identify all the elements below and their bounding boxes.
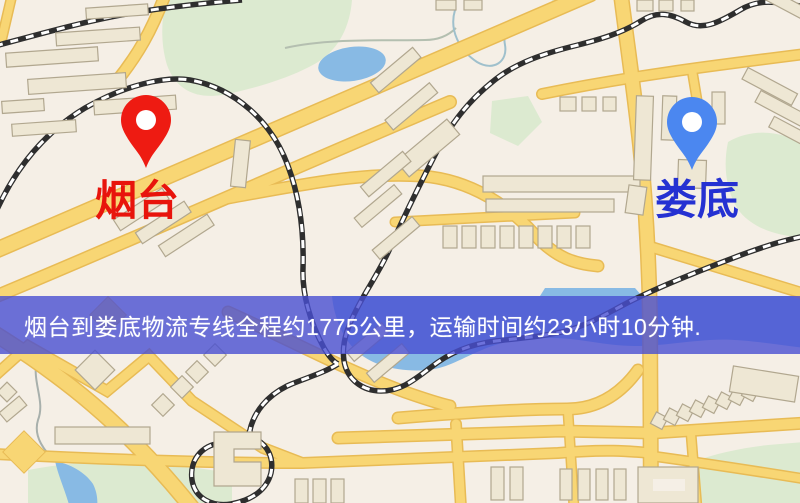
origin-label: 烟台	[95, 177, 179, 224]
route-info-text: 烟台到娄底物流专线全程约1775公里，运输时间约23小时10分钟.	[24, 308, 701, 342]
map-canvas: 烟台 娄底	[0, 0, 800, 503]
map: 烟台 娄底 烟台到娄底物流专线全程约1775公里，运输时间约23小时10分钟.	[0, 0, 800, 503]
destination-label: 娄底	[655, 176, 739, 223]
route-info-banner: 烟台到娄底物流专线全程约1775公里，运输时间约23小时10分钟.	[0, 296, 800, 354]
building-courtyard	[653, 479, 685, 491]
